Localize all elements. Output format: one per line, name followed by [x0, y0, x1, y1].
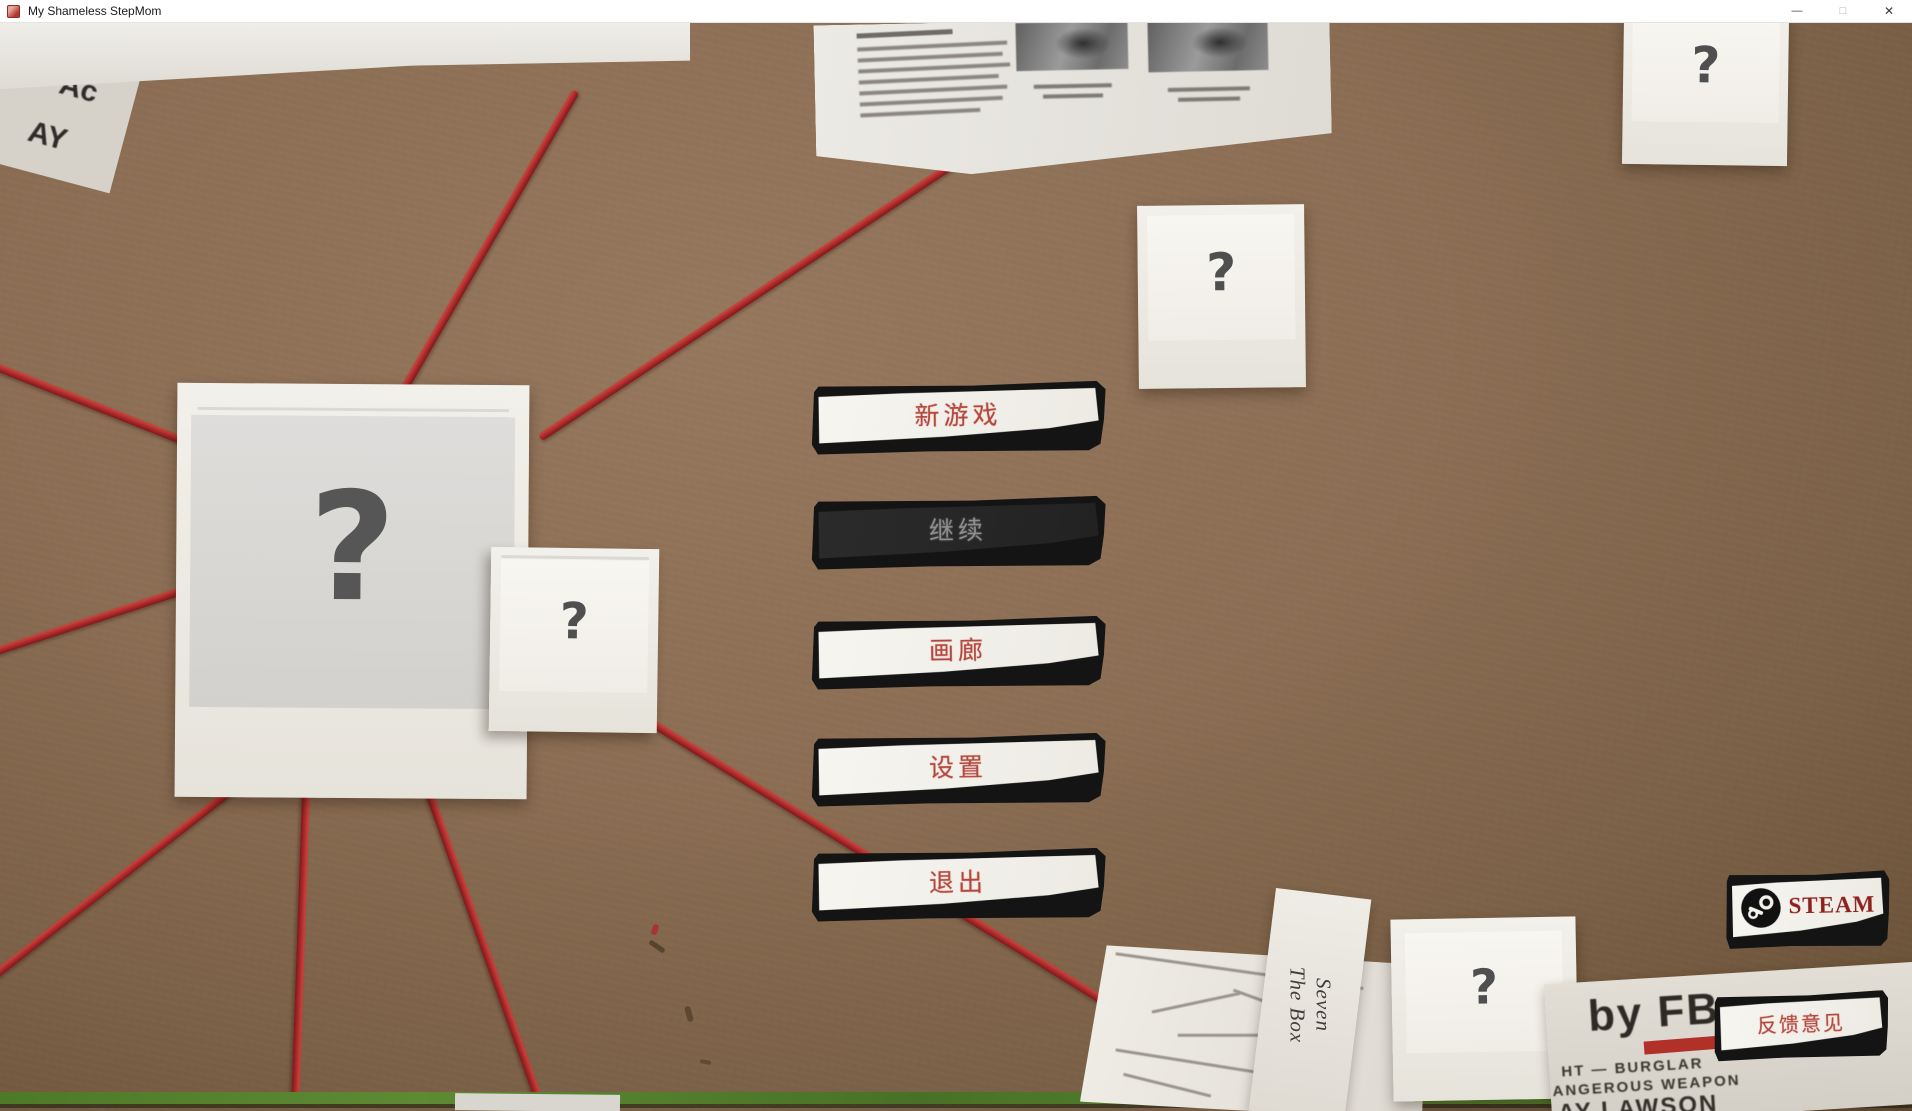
button-label: 反馈意见: [1756, 1006, 1845, 1038]
app-icon: [7, 5, 20, 18]
button-label: 画廊: [929, 631, 988, 668]
menu-button-settings[interactable]: 设置: [809, 733, 1106, 808]
question-mark-placeholder: ?: [559, 592, 589, 650]
menu-button-exit[interactable]: 退出: [809, 848, 1106, 923]
window-title: My Shameless StepMom: [28, 4, 161, 18]
fragment-letters: AY: [24, 115, 70, 158]
question-mark-placeholder: ?: [1691, 36, 1721, 94]
newspaper-photo: [1147, 18, 1268, 73]
menu-button-gallery[interactable]: 画廊: [809, 616, 1106, 691]
question-mark-placeholder: ?: [1206, 243, 1237, 303]
polaroid-small-overlap: ?: [489, 547, 660, 733]
note-line: Seven: [1310, 900, 1336, 1110]
paper-scrap: [455, 1093, 620, 1111]
game-window: Seven The Box 1b Ac AY by FB HT — BURGLA…: [0, 0, 1912, 1111]
newspaper-headline: by FB: [1587, 984, 1722, 1042]
steam-label: STEAM: [1788, 892, 1875, 920]
close-button[interactable]: ✕: [1866, 0, 1912, 22]
feedback-button[interactable]: 反馈意见: [1712, 990, 1890, 1062]
photo-caption: [1161, 80, 1258, 108]
question-mark-placeholder: ?: [308, 461, 396, 636]
photo-caption: [1027, 77, 1120, 105]
steam-logo-icon: [1739, 887, 1782, 930]
button-label: 继续: [929, 511, 988, 548]
button-label: 退出: [929, 863, 988, 900]
newspaper-text-column: [856, 23, 1018, 124]
polaroid-top-right: ?: [1622, 13, 1789, 166]
newspaper-photo: [1015, 21, 1128, 71]
button-label: 新游戏: [914, 395, 1002, 432]
maximize-button[interactable]: □: [1820, 0, 1866, 22]
window-titlebar: My Shameless StepMom — □ ✕: [0, 0, 1912, 23]
button-label: 设置: [929, 748, 988, 785]
menu-button-continue[interactable]: 继续: [809, 496, 1106, 571]
polaroid-large: ?: [175, 383, 530, 799]
window-controls: — □ ✕: [1774, 0, 1912, 22]
note-line: The Box: [1284, 900, 1310, 1110]
question-mark-placeholder: ?: [1470, 959, 1499, 1015]
steam-button[interactable]: STEAM: [1724, 870, 1891, 949]
minimize-button[interactable]: —: [1774, 0, 1820, 22]
polaroid-top-middle: ?: [1137, 204, 1306, 389]
menu-button-new-game[interactable]: 新游戏: [809, 381, 1106, 456]
